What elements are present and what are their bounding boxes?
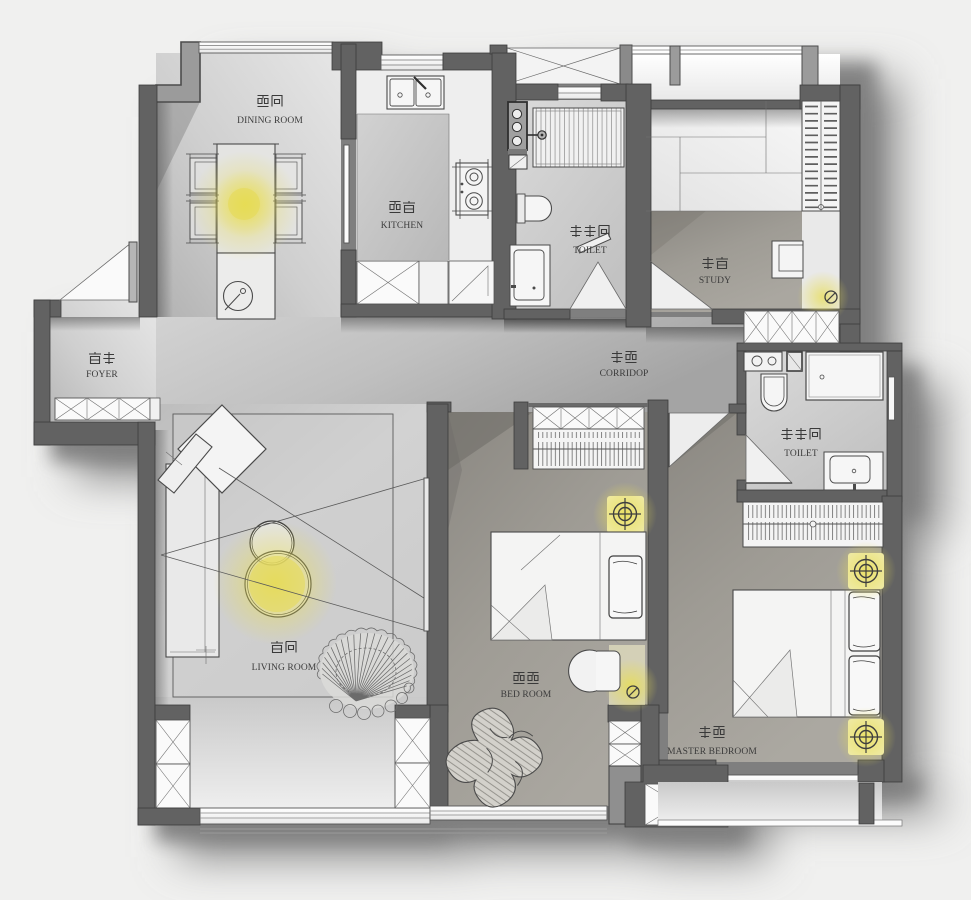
svg-text:KITCHEN: KITCHEN [381,221,423,231]
svg-text:FOYER: FOYER [86,370,118,380]
svg-text:BED ROOM: BED ROOM [501,690,552,700]
svg-text:STUDY: STUDY [699,276,731,286]
svg-text:TOILET: TOILET [573,246,607,256]
svg-text:CORRIDOP: CORRIDOP [600,369,649,379]
svg-text:MASTER BEDROOM: MASTER BEDROOM [667,747,757,757]
svg-text:LIVING ROOM: LIVING ROOM [252,663,317,673]
svg-text:TOILET: TOILET [784,449,818,459]
svg-text:DINING ROOM: DINING ROOM [237,116,303,126]
